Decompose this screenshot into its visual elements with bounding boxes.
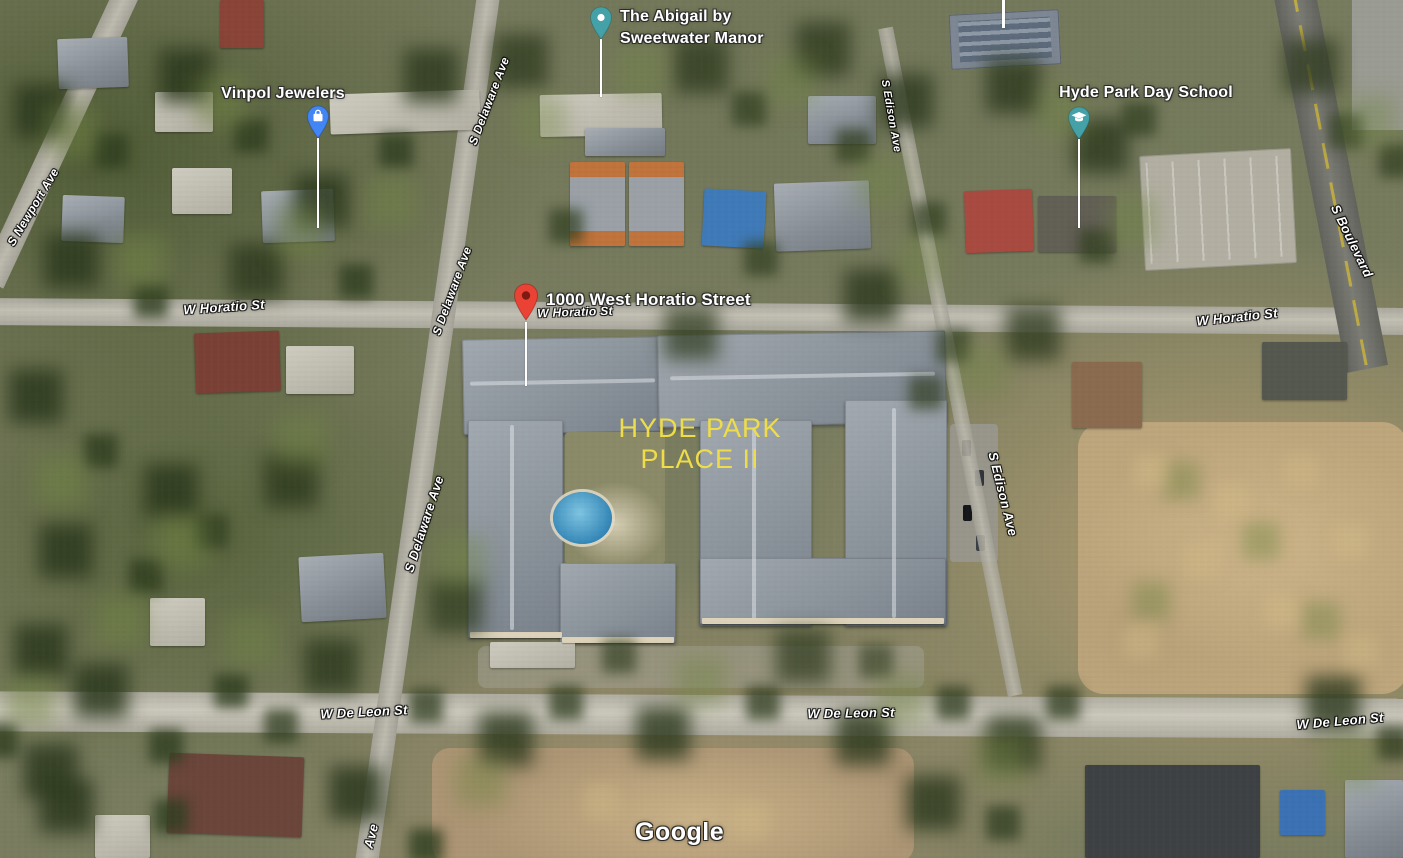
- google-watermark: Google: [635, 818, 724, 847]
- tree-canopy: [0, 0, 2, 2]
- dry-grass-patches: [0, 0, 2, 2]
- road-shoulder: [1352, 0, 1403, 130]
- building-roof: [95, 815, 150, 858]
- building-roof: [261, 189, 335, 243]
- poi-label-line2: Sweetwater Manor: [620, 28, 764, 50]
- parking-lot: [1139, 148, 1297, 271]
- pin-stem: [525, 322, 527, 386]
- building-roof: [490, 642, 575, 668]
- poi-label-hyde-park-day-school[interactable]: Hyde Park Day School: [1059, 84, 1233, 102]
- building-blue-roof: [702, 188, 767, 248]
- area-label-hyde-park-place: HYDE PARK PLACE II: [618, 413, 781, 475]
- building-dark-roof: [1085, 765, 1260, 858]
- pin-inner-dot: [522, 291, 530, 299]
- vacant-lot-field: [1078, 422, 1403, 694]
- building-roof: [167, 753, 305, 838]
- building-wall: [562, 637, 674, 643]
- building-roof: [57, 37, 129, 89]
- apartment-roof-south-east: [700, 558, 946, 624]
- area-label-line1: HYDE PARK: [618, 413, 781, 444]
- school-pin[interactable]: [1066, 106, 1092, 140]
- building-roof: [1262, 342, 1347, 400]
- building-roof: [808, 96, 876, 144]
- pin-stem: [1002, 0, 1005, 28]
- tree-canopy: [0, 0, 2, 2]
- poi-label-vinpol-jewelers[interactable]: Vinpol Jewelers: [221, 85, 345, 103]
- pin-stem: [600, 39, 602, 97]
- building-roof: [150, 598, 205, 646]
- parking-rows: [1146, 155, 1291, 263]
- apartment-roof-west-wing: [468, 420, 563, 638]
- tree-canopy: [0, 0, 2, 2]
- building-red-roof: [964, 189, 1034, 253]
- building-vinpol-jewelers: [329, 89, 480, 134]
- building-roof: [155, 92, 213, 132]
- building-wall: [470, 632, 562, 638]
- building-roof: [61, 195, 125, 243]
- building-roof: [298, 553, 386, 622]
- lodging-dot-icon: [597, 14, 604, 21]
- street-label-w-de-leon: W De Leon St: [807, 705, 895, 722]
- building-roof: [1345, 780, 1403, 858]
- apartment-roof-south-west: [560, 563, 676, 643]
- building-roof: [194, 331, 281, 394]
- building-roof: [585, 128, 665, 156]
- address-label[interactable]: 1000 West Horatio Street: [546, 290, 751, 310]
- pin-stem: [1078, 139, 1080, 228]
- building-orange-roof: [570, 162, 625, 246]
- building-roof: [1072, 362, 1142, 428]
- building-wall: [702, 618, 944, 624]
- road-w-de-leon: [0, 691, 1403, 738]
- building-roof: [286, 346, 354, 394]
- swimming-pool: [553, 492, 612, 544]
- building-school: [1038, 196, 1116, 252]
- address-pin[interactable]: [513, 283, 539, 321]
- roof-ridge: [892, 408, 896, 618]
- lodging-pin[interactable]: [588, 6, 614, 40]
- map-canvas[interactable]: W Horatio St W Horatio St W Horatio St W…: [0, 0, 1403, 858]
- building-solar-roof: [949, 9, 1062, 70]
- building-roof: [774, 180, 871, 251]
- building-roof: [172, 168, 232, 214]
- roof-ridge: [510, 425, 514, 630]
- building-blue-roof: [1280, 790, 1325, 835]
- pin-stem: [317, 138, 319, 228]
- poi-label-line1: The Abigail by: [620, 6, 764, 28]
- area-label-line2: PLACE II: [618, 444, 781, 475]
- building-roof: [220, 0, 264, 48]
- building-orange-roof: [629, 162, 684, 246]
- shopping-bag-pin[interactable]: [305, 105, 331, 139]
- poi-label-the-abigail[interactable]: The Abigail by Sweetwater Manor: [620, 6, 764, 50]
